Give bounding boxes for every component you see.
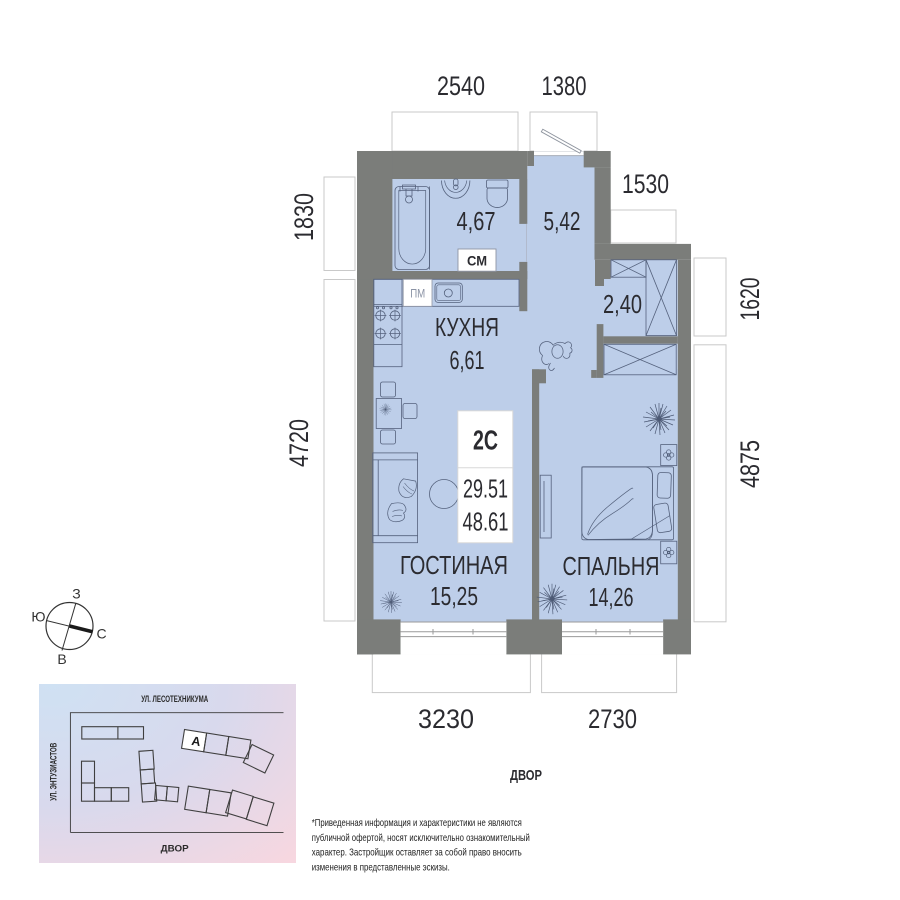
- svg-text:Ю: Ю: [31, 609, 45, 625]
- svg-text:5,42: 5,42: [544, 206, 581, 236]
- svg-text:1530: 1530: [622, 169, 669, 199]
- svg-text:1380: 1380: [542, 71, 587, 101]
- svg-text:3230: 3230: [418, 704, 474, 734]
- svg-text:4,67: 4,67: [457, 206, 496, 236]
- svg-text:1620: 1620: [735, 278, 765, 321]
- svg-text:4875: 4875: [735, 440, 765, 488]
- svg-text:29.51: 29.51: [463, 474, 508, 504]
- svg-text:публичной офертой, носят исклю: публичной офертой, носят исключительно о…: [312, 832, 530, 844]
- svg-text:1830: 1830: [289, 193, 319, 241]
- svg-text:УЛ. ЭНТУЗИАСТОВ: УЛ. ЭНТУЗИАСТОВ: [49, 742, 59, 800]
- svg-text:СМ: СМ: [467, 253, 487, 269]
- svg-text:4720: 4720: [284, 419, 314, 467]
- svg-text:В: В: [57, 651, 66, 667]
- svg-text:С: С: [96, 626, 106, 642]
- svg-text:ПМ: ПМ: [410, 287, 425, 301]
- svg-text:ГОСТИНАЯ: ГОСТИНАЯ: [400, 550, 508, 580]
- svg-text:2С: 2С: [473, 425, 498, 456]
- svg-text:14,26: 14,26: [589, 582, 634, 612]
- svg-text:2540: 2540: [437, 71, 485, 101]
- svg-text:15,25: 15,25: [430, 581, 478, 611]
- svg-text:2,40: 2,40: [603, 289, 642, 319]
- svg-text:СПАЛЬНЯ: СПАЛЬНЯ: [563, 551, 660, 581]
- svg-text:2730: 2730: [588, 704, 637, 734]
- svg-text:*Приведенная информация и хара: *Приведенная информация и характеристики…: [312, 817, 522, 829]
- svg-text:КУХНЯ: КУХНЯ: [435, 312, 499, 342]
- svg-text:ДВОР: ДВОР: [161, 844, 189, 854]
- svg-text:6,61: 6,61: [450, 345, 485, 375]
- svg-text:ДВОР: ДВОР: [510, 767, 542, 784]
- svg-text:УЛ. ЛЕСОТЕХНИКУМА: УЛ. ЛЕСОТЕХНИКУМА: [141, 694, 208, 704]
- svg-text:48.61: 48.61: [463, 507, 509, 537]
- svg-text:изменения в представленные эск: изменения в представленные эскизы.: [312, 861, 450, 873]
- svg-text:характер. Застройщик оставляет: характер. Застройщик оставляет за собой …: [312, 847, 522, 859]
- svg-text:З: З: [72, 586, 80, 602]
